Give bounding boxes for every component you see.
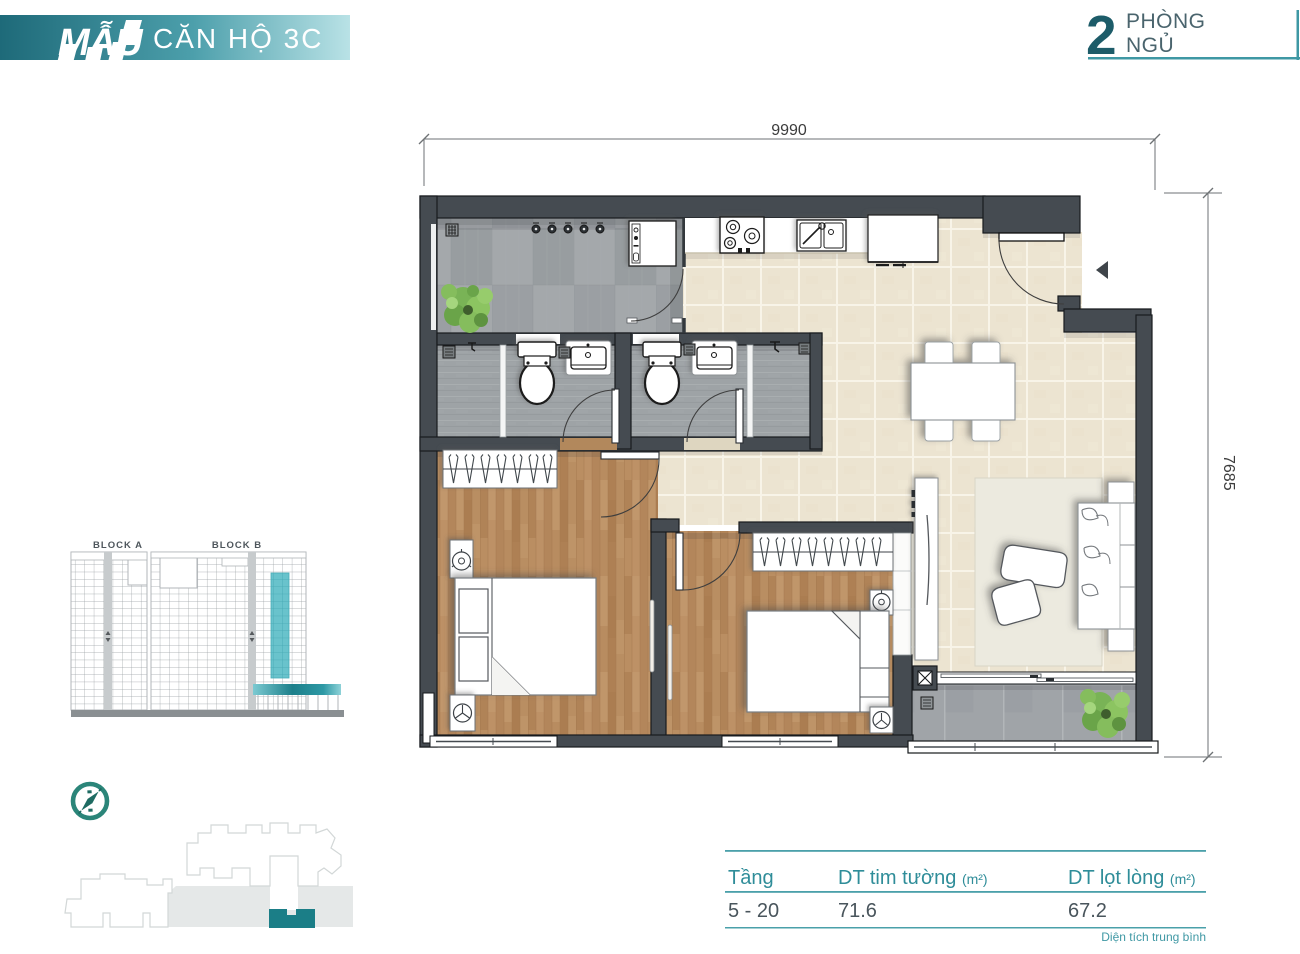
svg-text:CĂN HỘ 3C: CĂN HỘ 3C [153, 23, 323, 54]
svg-text:NGỦ: NGỦ [1126, 33, 1174, 57]
svg-text:71.6: 71.6 [838, 900, 877, 922]
svg-text:BLOCK B: BLOCK B [212, 540, 262, 551]
svg-text:Diện tích trung bình: Diện tích trung bình [1101, 930, 1206, 944]
svg-text:9990: 9990 [771, 122, 807, 139]
svg-text:2: 2 [1086, 4, 1117, 66]
svg-text:DT tim tường (m²): DT tim tường (m²) [838, 867, 988, 889]
svg-text:DT lọt lòng (m²): DT lọt lòng (m²) [1068, 867, 1196, 889]
svg-text:BLOCK A: BLOCK A [93, 540, 143, 551]
svg-text:7685: 7685 [1220, 455, 1237, 491]
svg-text:PHÒNG: PHÒNG [1126, 10, 1206, 33]
svg-text:5 - 20: 5 - 20 [728, 900, 779, 922]
svg-text:Tầng: Tầng [728, 867, 774, 889]
svg-text:67.2: 67.2 [1068, 900, 1107, 922]
